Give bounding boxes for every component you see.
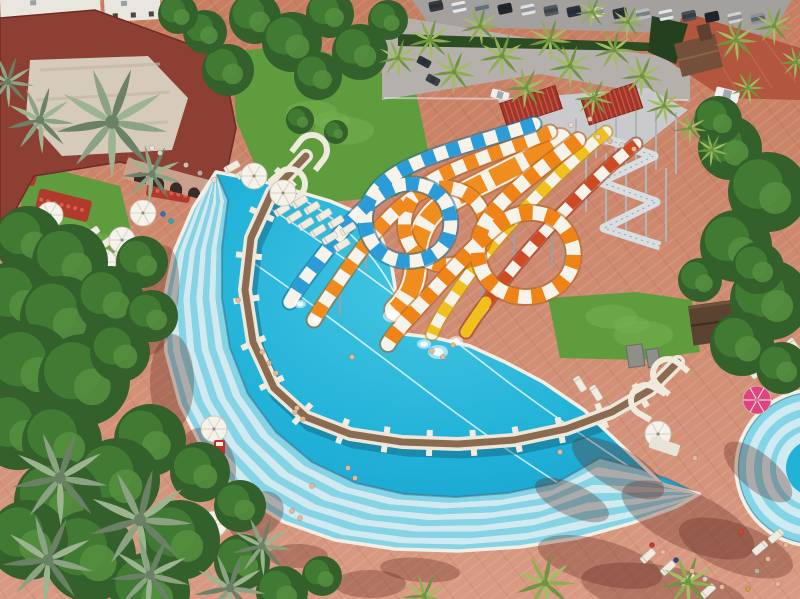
person: [450, 342, 455, 347]
person: [649, 542, 654, 547]
person: [183, 162, 188, 167]
resort-aerial-photo: [0, 0, 800, 599]
parasol: [201, 416, 227, 442]
person: [211, 177, 216, 182]
person: [349, 354, 354, 359]
person: [754, 568, 759, 573]
person: [266, 360, 271, 365]
person: [149, 145, 154, 150]
person: [429, 348, 434, 353]
person: [692, 455, 697, 460]
person: [660, 549, 665, 554]
person: [619, 142, 624, 147]
pine-tree: [126, 290, 178, 342]
person: [292, 409, 297, 414]
person: [309, 483, 314, 488]
utility-box: [626, 344, 645, 368]
person: [587, 116, 592, 121]
pine-tree: [302, 556, 342, 596]
person: [160, 211, 165, 216]
person: [157, 150, 162, 155]
parasol: [743, 386, 771, 414]
person: [168, 218, 173, 223]
person: [719, 584, 724, 589]
person: [689, 568, 694, 573]
person: [300, 416, 305, 421]
person: [352, 475, 357, 480]
person: [783, 542, 788, 547]
person: [289, 508, 294, 513]
person: [297, 515, 302, 520]
person: [631, 146, 636, 151]
person: [345, 465, 350, 470]
person: [440, 354, 445, 359]
lawn: [548, 292, 700, 360]
pine-tree: [214, 480, 266, 532]
pine-tree: [294, 52, 342, 100]
person: [745, 586, 750, 591]
person: [568, 122, 573, 127]
person: [235, 297, 240, 302]
person: [557, 449, 562, 454]
person: [738, 529, 743, 534]
person: [273, 370, 278, 375]
person: [702, 576, 707, 581]
pine-tree: [678, 258, 722, 302]
person: [595, 134, 600, 139]
pine-tree: [324, 120, 348, 144]
person: [259, 349, 264, 354]
parasol: [270, 180, 296, 206]
person: [775, 581, 780, 586]
person: [607, 138, 612, 143]
pine-tree: [368, 0, 408, 40]
pine-tree: [116, 236, 168, 288]
person: [197, 170, 202, 175]
person: [673, 557, 678, 562]
pine-tree: [732, 242, 784, 294]
person: [765, 556, 770, 561]
aerial-scene: [0, 0, 800, 599]
parasol: [241, 163, 267, 189]
parasol: [130, 200, 156, 226]
pine-tree: [286, 106, 314, 134]
